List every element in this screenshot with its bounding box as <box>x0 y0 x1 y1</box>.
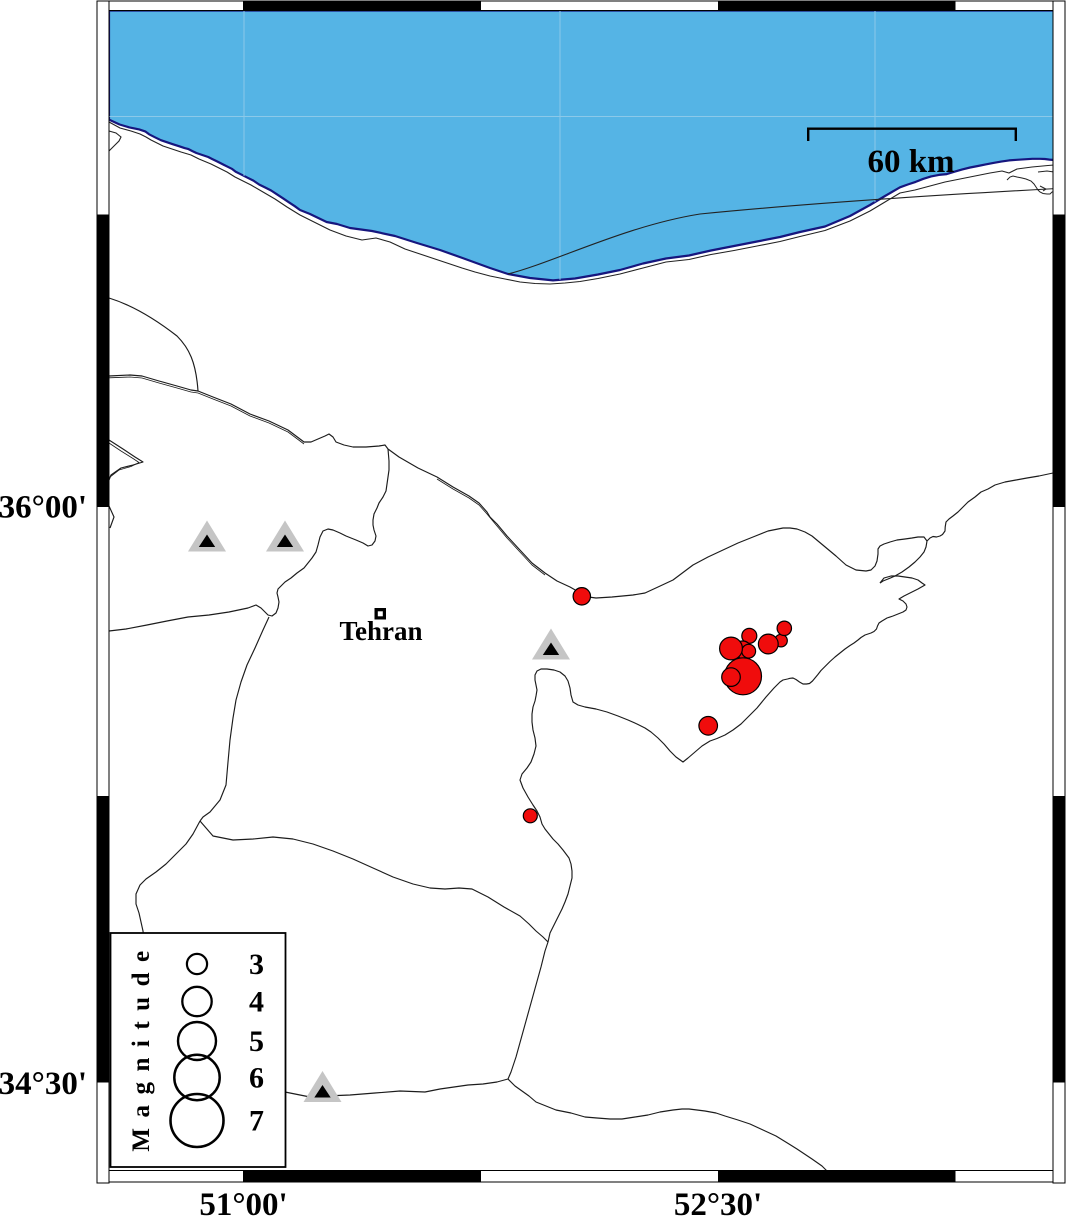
svg-text:6: 6 <box>249 1062 264 1095</box>
svg-text:36°00': 36°00' <box>0 490 87 526</box>
svg-text:51°00': 51°00' <box>199 1187 287 1219</box>
svg-text:Magnitude: Magnitude <box>128 940 155 1151</box>
svg-text:34°30': 34°30' <box>0 1066 87 1102</box>
svg-text:3: 3 <box>249 948 264 981</box>
svg-text:4: 4 <box>249 986 264 1019</box>
svg-text:5: 5 <box>249 1025 264 1058</box>
svg-text:Tehran: Tehran <box>339 616 422 646</box>
svg-text:52°30': 52°30' <box>674 1187 762 1219</box>
svg-text:7: 7 <box>249 1105 264 1138</box>
svg-text:60 km: 60 km <box>867 144 954 180</box>
